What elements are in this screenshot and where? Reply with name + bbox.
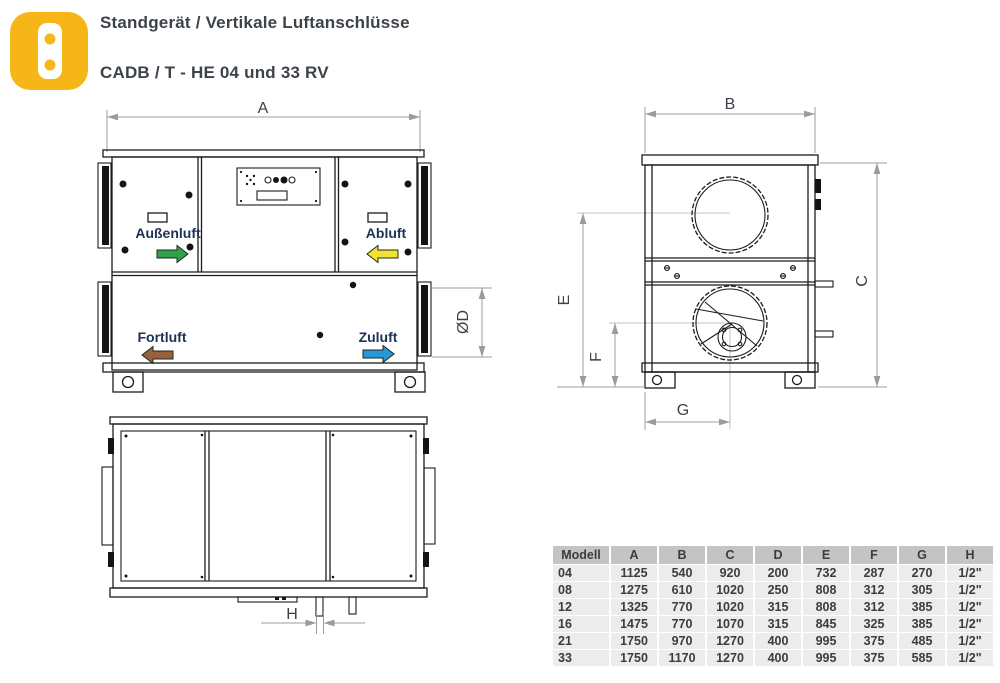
control-panel	[237, 168, 320, 205]
bottom-casing	[110, 417, 427, 597]
datasheet-page: Standgerät / Vertikale Luftanschlüsse CA…	[0, 0, 1000, 683]
table-cell: 995	[803, 633, 849, 649]
dimension-e-label: E	[556, 295, 573, 306]
table-cell: 1275	[611, 582, 657, 598]
table-cell: 1/2"	[947, 599, 993, 615]
table-cell: 250	[755, 582, 801, 598]
side-view-drawing: B	[545, 95, 1000, 445]
table-cell: 315	[755, 599, 801, 615]
exhaust-air-arrow-icon	[142, 347, 173, 364]
table-cell: 325	[851, 616, 897, 632]
table-cell: 1270	[707, 650, 753, 666]
table-cell: 1325	[611, 599, 657, 615]
table-cell: 970	[659, 633, 705, 649]
outdoor-air-label: Außenluft	[135, 225, 201, 241]
table-cell: 1/2"	[947, 565, 993, 581]
table-header-row: ModellABCDEFGH	[553, 546, 993, 564]
table-cell: 1750	[611, 633, 657, 649]
table-cell: 305	[899, 582, 945, 598]
table-cell: 1020	[707, 599, 753, 615]
table-row: 331750117012704009953755851/2"	[553, 650, 993, 666]
table-cell: 1170	[659, 650, 705, 666]
table-cell: 12	[553, 599, 609, 615]
extract-air-arrow-icon	[367, 246, 398, 263]
table-header-cell: Modell	[553, 546, 609, 564]
table-cell: 1020	[707, 582, 753, 598]
table-cell: 04	[553, 565, 609, 581]
panel-corner-screws	[125, 434, 413, 579]
table-cell: 1/2"	[947, 633, 993, 649]
page-subtitle: CADB / T - HE 04 und 33 RV	[100, 63, 329, 83]
table-header-cell: C	[707, 546, 753, 564]
icon-port-bottom	[45, 60, 56, 71]
table-cell: 200	[755, 565, 801, 581]
table-cell: 770	[659, 616, 705, 632]
table-cell: 400	[755, 650, 801, 666]
table-row: 21175097012704009953754851/2"	[553, 633, 993, 649]
table-header-cell: F	[851, 546, 897, 564]
table-row: 08127561010202508083123051/2"	[553, 582, 993, 598]
table-cell: 732	[803, 565, 849, 581]
extract-air-label: Abluft	[366, 225, 407, 241]
table-cell: 400	[755, 633, 801, 649]
table-cell: 1/2"	[947, 650, 993, 666]
table-cell: 08	[553, 582, 609, 598]
table-cell: 1/2"	[947, 616, 993, 632]
page-title: Standgerät / Vertikale Luftanschlüsse	[100, 13, 410, 33]
table-cell: 920	[707, 565, 753, 581]
table-cell: 1270	[707, 633, 753, 649]
table-cell: 270	[899, 565, 945, 581]
front-view-drawing: A	[85, 100, 525, 400]
table-cell: 21	[553, 633, 609, 649]
top-duct-opening	[692, 177, 768, 253]
table-header-cell: E	[803, 546, 849, 564]
duct-flanges	[98, 163, 431, 356]
dimension-g-label: G	[677, 402, 689, 419]
table-cell: 540	[659, 565, 705, 581]
panel-screws	[120, 181, 412, 339]
dimension-a-label: A	[258, 100, 269, 117]
table-header-cell: D	[755, 546, 801, 564]
side-connections	[815, 179, 833, 337]
table-cell: 16	[553, 616, 609, 632]
bottom-flanges	[102, 438, 435, 567]
table-cell: 312	[851, 599, 897, 615]
table-cell: 770	[659, 599, 705, 615]
dimension-h-label: H	[286, 606, 298, 623]
table-header-cell: A	[611, 546, 657, 564]
table-cell: 287	[851, 565, 897, 581]
table-cell: 1070	[707, 616, 753, 632]
table-header-cell: G	[899, 546, 945, 564]
extract-air-handle	[368, 213, 387, 222]
table-cell: 1750	[611, 650, 657, 666]
table-cell: 808	[803, 599, 849, 615]
supply-air-label: Zuluft	[359, 329, 398, 345]
outdoor-air-arrow-icon	[157, 246, 188, 263]
table-cell: 375	[851, 650, 897, 666]
icon-unit-body	[38, 23, 62, 79]
table-cell: 315	[755, 616, 801, 632]
icon-port-top	[45, 34, 56, 45]
dimension-c-label: C	[854, 275, 871, 287]
bottom-view-drawing: H	[85, 405, 485, 650]
dimension-b	[645, 107, 815, 153]
table-cell: 312	[851, 582, 897, 598]
table-cell: 808	[803, 582, 849, 598]
table-cell: 375	[851, 633, 897, 649]
table-cell: 845	[803, 616, 849, 632]
table-header-cell: H	[947, 546, 993, 564]
table-cell: 585	[899, 650, 945, 666]
dimensions-table: ModellABCDEFGH0411255409202007322872701/…	[551, 545, 995, 667]
band-screws	[664, 266, 796, 279]
table-cell: 1/2"	[947, 582, 993, 598]
exhaust-air-label: Fortluft	[138, 329, 187, 345]
dimension-d-label: ØD	[455, 310, 472, 334]
table-cell: 1125	[611, 565, 657, 581]
table-cell: 385	[899, 599, 945, 615]
table-header-cell: B	[659, 546, 705, 564]
table-cell: 485	[899, 633, 945, 649]
table-row: 0411255409202007322872701/2"	[553, 565, 993, 581]
dimension-b-label: B	[725, 96, 736, 113]
supply-air-arrow-icon	[363, 346, 394, 363]
table-cell: 33	[553, 650, 609, 666]
table-cell: 610	[659, 582, 705, 598]
table-cell: 385	[899, 616, 945, 632]
table-cell: 1475	[611, 616, 657, 632]
dimension-c	[818, 163, 887, 387]
table-cell: 995	[803, 650, 849, 666]
dimension-f	[612, 323, 619, 387]
table-row: 12132577010203158083123851/2"	[553, 599, 993, 615]
outdoor-air-handle	[148, 213, 167, 222]
product-type-icon	[10, 12, 88, 90]
dimension-f-label: F	[588, 352, 605, 362]
table-row: 16147577010703158453253851/2"	[553, 616, 993, 632]
